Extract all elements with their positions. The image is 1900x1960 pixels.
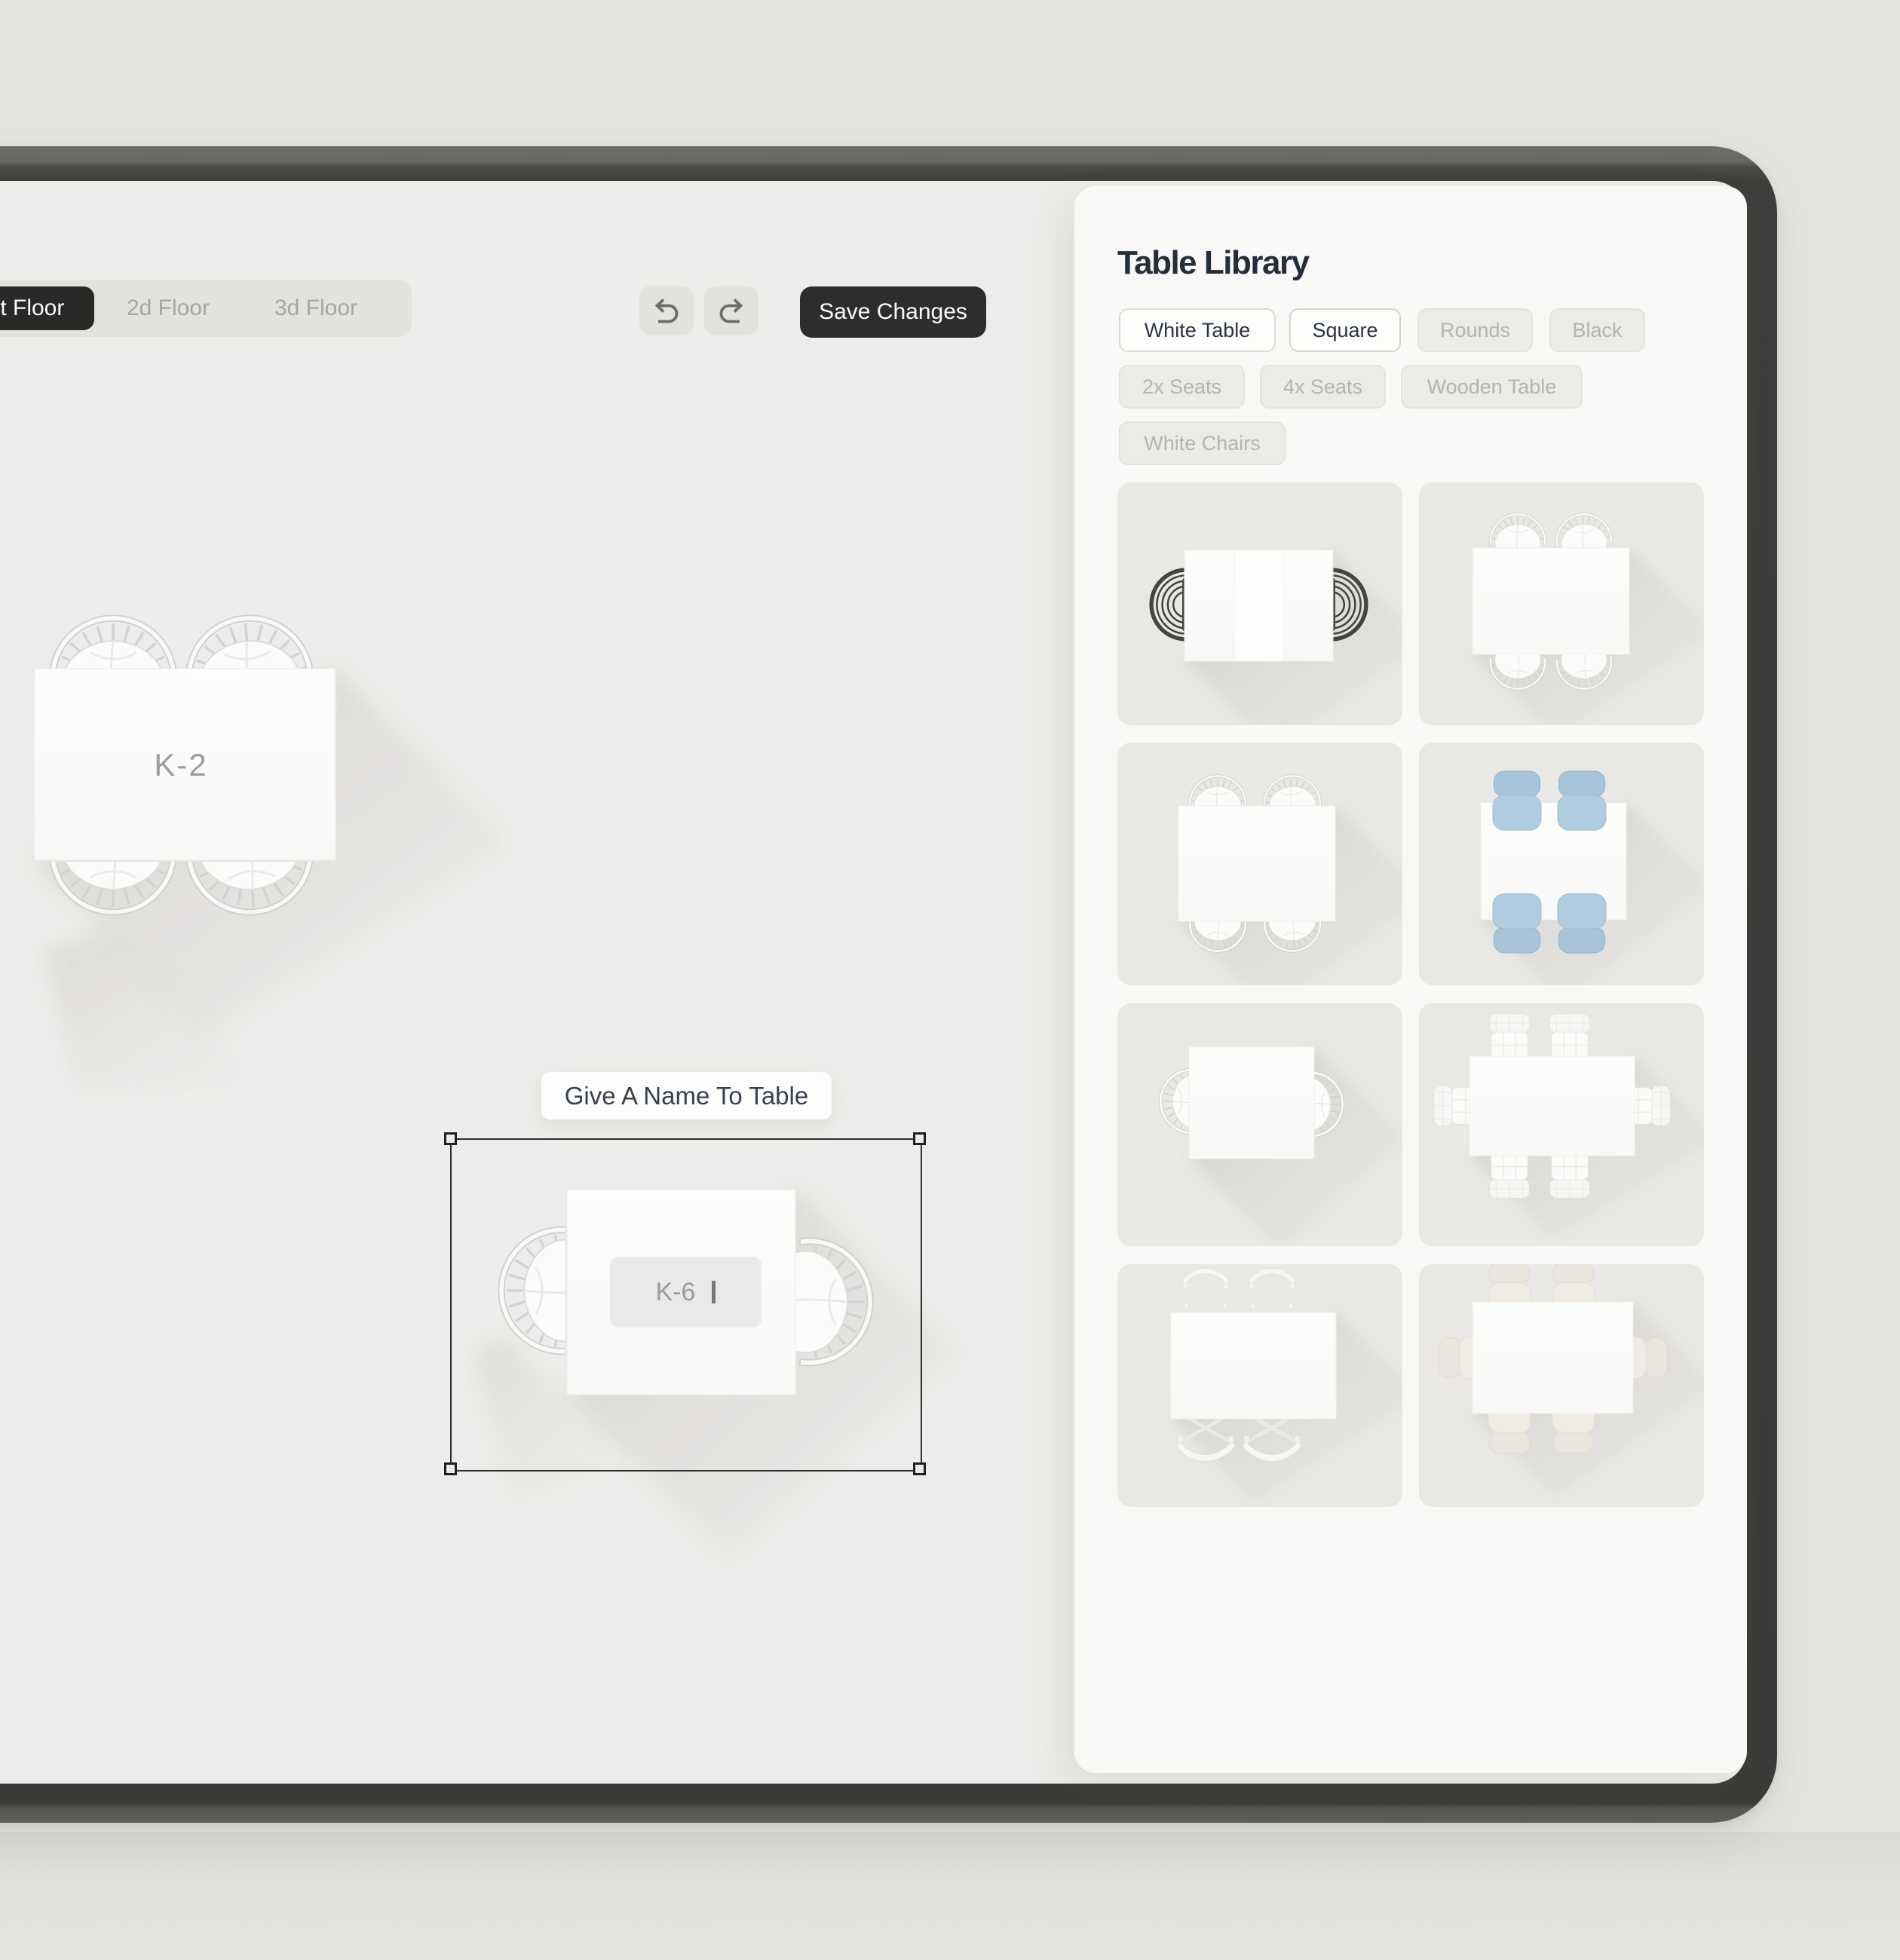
svg-text:K-2: K-2 xyxy=(154,747,207,782)
